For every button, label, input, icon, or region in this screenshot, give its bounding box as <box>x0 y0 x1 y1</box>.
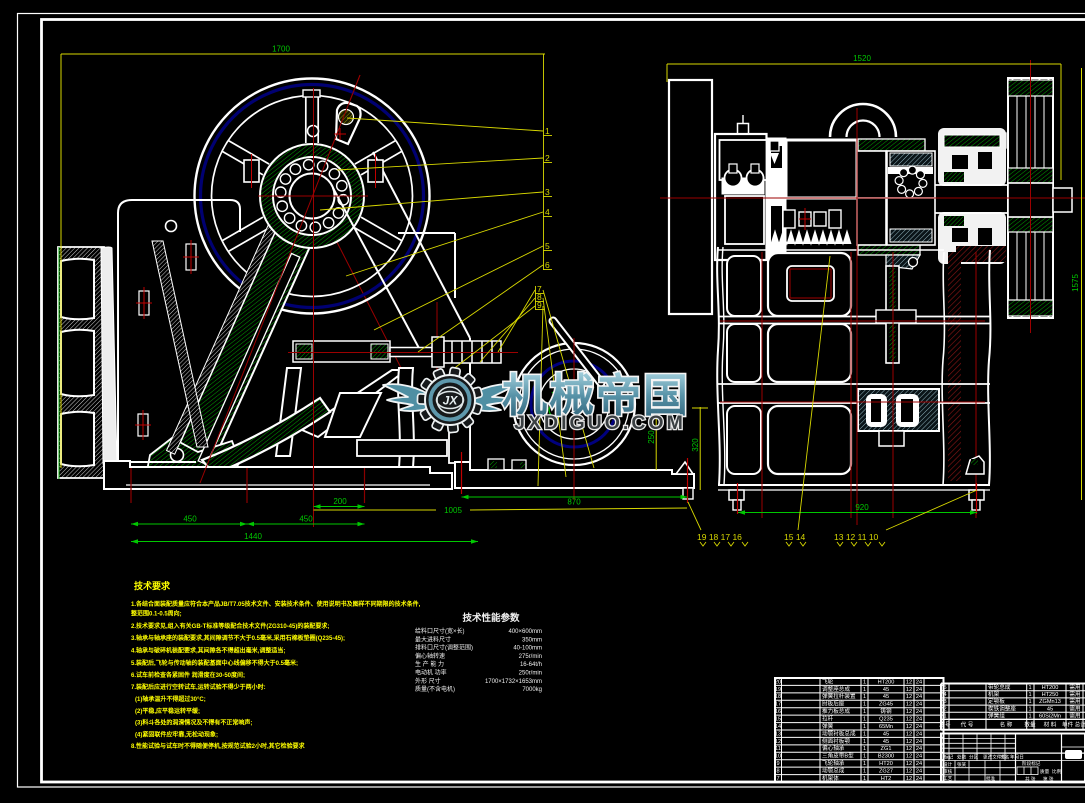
svg-text:3.轴承与轴承座的装配要求,其间隙调节不大于0.5毫米,采用: 3.轴承与轴承座的装配要求,其间隙调节不大于0.5毫米,采用石棉板垫圈(Q235… <box>131 634 345 642</box>
svg-text:4: 4 <box>943 692 946 698</box>
svg-text:12: 12 <box>906 761 912 767</box>
svg-text:20: 20 <box>775 679 781 685</box>
svg-text:4.轴承与破碎机装配要求,其间隙各不得超出毫米,调整适当;: 4.轴承与破碎机装配要求,其间隙各不得超出毫米,调整适当; <box>131 647 285 655</box>
svg-text:920: 920 <box>855 503 869 512</box>
svg-text:铸钢: 铸钢 <box>880 707 892 715</box>
svg-text:1.各结合面装配质量应符合本产品JB/T7.05技术文件、安: 1.各结合面装配质量应符合本产品JB/T7.05技术文件、安装技术条件、使用说明… <box>131 600 421 608</box>
svg-text:45: 45 <box>1047 706 1053 712</box>
svg-text:24: 24 <box>916 776 922 782</box>
svg-text:1: 1 <box>863 731 866 737</box>
svg-text:7000kg: 7000kg <box>522 687 542 693</box>
svg-text:13: 13 <box>775 731 781 737</box>
svg-text:ZG45: ZG45 <box>879 702 893 708</box>
svg-text:分区: 分区 <box>969 754 979 761</box>
svg-text:1: 1 <box>863 679 866 685</box>
svg-text:45: 45 <box>883 731 889 737</box>
svg-text:1: 1 <box>863 761 866 767</box>
svg-text:6: 6 <box>545 260 550 270</box>
svg-text:标记: 标记 <box>944 754 954 761</box>
svg-text:审核: 审核 <box>943 768 953 775</box>
svg-text:12: 12 <box>906 702 912 708</box>
svg-text:1: 1 <box>863 717 866 723</box>
svg-text:调整座总成: 调整座总成 <box>822 685 850 693</box>
svg-text:单件 总计: 单件 总计 <box>1062 721 1085 729</box>
svg-text:1700: 1700 <box>272 45 290 54</box>
svg-text:65Mn: 65Mn <box>879 724 893 730</box>
svg-text:弹簧拉杆装置: 弹簧拉杆装置 <box>822 692 856 700</box>
svg-text:偏心轴转速: 偏心轴转速 <box>415 652 445 660</box>
svg-text:12: 12 <box>906 769 912 775</box>
svg-text:HT250: HT250 <box>1042 692 1059 698</box>
svg-text:工艺: 工艺 <box>943 776 953 781</box>
svg-text:共 张: 共 张 <box>1025 776 1036 783</box>
svg-text:拉杆: 拉杆 <box>822 715 834 723</box>
svg-text:5: 5 <box>943 685 946 691</box>
svg-text:15: 15 <box>775 717 781 723</box>
svg-text:12: 12 <box>906 739 912 745</box>
svg-text:HT200: HT200 <box>878 679 895 685</box>
svg-text:比例: 比例 <box>1052 768 1062 775</box>
svg-text:12: 12 <box>906 731 912 737</box>
svg-text:19 18 17 16: 19 18 17 16 <box>697 532 742 542</box>
svg-text:12: 12 <box>906 776 912 782</box>
svg-text:24: 24 <box>916 769 922 775</box>
svg-text:8.性能试验与试车时不得随便停机,按规范试验2小时,其它检验: 8.性能试验与试车时不得随便停机,按规范试验2小时,其它检验要求 <box>131 742 306 750</box>
svg-text:1: 1 <box>863 739 866 745</box>
svg-text:技术要求: 技术要求 <box>134 580 171 591</box>
svg-text:2: 2 <box>545 153 550 163</box>
svg-text:1: 1 <box>545 126 550 136</box>
svg-text:需用: 需用 <box>1069 698 1080 705</box>
svg-text:6.试车前检查各紧固件 润滑度在30-50度间;: 6.试车前检查各紧固件 润滑度在30-50度间; <box>131 671 245 679</box>
svg-text:电动机 功率: 电动机 功率 <box>415 669 447 677</box>
svg-text:3: 3 <box>545 187 550 197</box>
svg-text:1: 1 <box>863 746 866 752</box>
svg-text:12: 12 <box>906 746 912 752</box>
svg-text:15 14: 15 14 <box>784 532 806 542</box>
svg-text:24: 24 <box>916 717 922 723</box>
svg-text:1: 1 <box>863 769 866 775</box>
svg-text:2: 2 <box>943 706 946 712</box>
svg-text:排料口尺寸(调整范围): 排料口尺寸(调整范围) <box>415 644 473 652</box>
svg-text:1520: 1520 <box>853 54 871 63</box>
svg-text:动颚衬板总成: 动颚衬板总成 <box>822 729 856 737</box>
svg-text:定颚板: 定颚板 <box>988 697 1005 705</box>
svg-text:ZGMn13: ZGMn13 <box>1039 699 1061 705</box>
svg-text:偏心轴承: 偏心轴承 <box>822 744 845 752</box>
svg-text:24: 24 <box>916 724 922 730</box>
svg-text:1: 1 <box>943 714 946 720</box>
svg-text:1: 1 <box>863 724 866 730</box>
svg-text:处数: 处数 <box>957 754 967 761</box>
svg-text:8: 8 <box>776 769 779 775</box>
svg-text:第 张: 第 张 <box>1043 776 1054 783</box>
svg-text:7.装配后应进行空转试车,运转试验不得少于两小时:: 7.装配后应进行空转试车,运转试验不得少于两小时: <box>131 683 266 691</box>
svg-text:4: 4 <box>545 207 550 217</box>
svg-text:1: 1 <box>863 694 866 700</box>
svg-text:机架体: 机架体 <box>822 774 839 782</box>
svg-text:24: 24 <box>916 679 922 685</box>
svg-text:张某: 张某 <box>957 761 967 768</box>
svg-text:1: 1 <box>1028 706 1031 712</box>
svg-text:450: 450 <box>183 515 197 524</box>
svg-text:质量: 质量 <box>1040 768 1050 775</box>
svg-text:签名: 签名 <box>1000 754 1009 761</box>
svg-text:16-64t/h: 16-64t/h <box>520 662 542 668</box>
svg-text:机架: 机架 <box>988 690 1000 698</box>
svg-text:JX: JX <box>443 394 459 408</box>
svg-text:飞轮: 飞轮 <box>822 677 834 685</box>
svg-text:B2300: B2300 <box>878 754 894 760</box>
svg-text:9: 9 <box>776 761 779 767</box>
svg-text:24: 24 <box>916 746 922 752</box>
svg-text:13 12 11 10: 13 12 11 10 <box>834 532 879 542</box>
svg-text:1575: 1575 <box>1071 274 1080 292</box>
svg-text:1: 1 <box>1028 692 1031 698</box>
svg-text:1: 1 <box>1028 714 1031 720</box>
svg-text:需用: 需用 <box>1069 713 1080 720</box>
svg-text:外形 尺寸: 外形 尺寸 <box>415 677 441 685</box>
svg-text:24: 24 <box>916 739 922 745</box>
svg-text:24: 24 <box>916 754 922 760</box>
svg-text:18: 18 <box>775 694 781 700</box>
svg-text:最大进料尺寸: 最大进料尺寸 <box>415 635 451 643</box>
svg-text:推力板总成: 推力板总成 <box>822 707 850 715</box>
svg-text:250r/min: 250r/min <box>519 671 542 677</box>
svg-text:1005: 1005 <box>444 506 462 515</box>
svg-text:阶段标记: 阶段标记 <box>1022 760 1041 767</box>
svg-text:24: 24 <box>916 687 922 693</box>
svg-text:楔铁调整座: 楔铁调整座 <box>988 704 1016 712</box>
svg-text:5: 5 <box>545 241 550 251</box>
svg-text:生 产 能 力: 生 产 能 力 <box>415 660 444 668</box>
svg-text:需用: 需用 <box>1069 705 1080 712</box>
svg-text:代 号: 代 号 <box>961 721 974 729</box>
svg-text:12: 12 <box>775 739 781 745</box>
svg-text:三角皮带B型: 三角皮带B型 <box>822 752 854 760</box>
svg-text:ZG1: ZG1 <box>881 746 892 752</box>
svg-text:1: 1 <box>863 687 866 693</box>
svg-text:(4)紧固联件应牢靠,无松动现象;: (4)紧固联件应牢靠,无松动现象; <box>135 731 218 739</box>
svg-text:材 料: 材 料 <box>1044 721 1057 729</box>
svg-text:2.技术要求见,组入有关GB-T标准等级配合技术文件(ZG3: 2.技术要求见,组入有关GB-T标准等级配合技术文件(ZG310-45)的装配要… <box>131 622 329 630</box>
svg-text:需用: 需用 <box>1069 684 1080 691</box>
svg-text:设计: 设计 <box>943 761 953 768</box>
svg-text:12: 12 <box>906 694 912 700</box>
svg-text:14: 14 <box>775 724 781 730</box>
svg-text:870: 870 <box>567 498 581 507</box>
svg-text:飞轮轴承: 飞轮轴承 <box>822 759 845 767</box>
svg-text:(1)轴承温升不得超过30°C;: (1)轴承温升不得超过30°C; <box>135 695 206 703</box>
svg-text:5.装配后,飞轮与传动轴的装配基面中心线偏移不得大于0.5毫: 5.装配后,飞轮与传动轴的装配基面中心线偏移不得大于0.5毫米; <box>131 659 298 667</box>
svg-text:弹簧组: 弹簧组 <box>988 712 1005 720</box>
svg-text:1: 1 <box>863 702 866 708</box>
svg-text:HT20: HT20 <box>879 761 893 767</box>
svg-text:给料口尺寸(宽×长): 给料口尺寸(宽×长) <box>415 627 465 635</box>
svg-text:序号: 序号 <box>939 721 951 729</box>
svg-text:Q235: Q235 <box>879 717 893 723</box>
svg-text:(2)平稳,应平稳运转平缓;: (2)平稳,应平稳运转平缓; <box>135 707 200 715</box>
svg-text:带轮总成: 带轮总成 <box>988 683 1011 691</box>
svg-text:1: 1 <box>863 776 866 782</box>
svg-text:7: 7 <box>776 776 779 782</box>
svg-text:整范围0.1-0.5周向;: 整范围0.1-0.5周向; <box>130 610 182 618</box>
svg-text:HT200: HT200 <box>1042 685 1059 691</box>
svg-text:12: 12 <box>906 754 912 760</box>
svg-text:17: 17 <box>775 702 781 708</box>
svg-text:12: 12 <box>906 687 912 693</box>
svg-text:1: 1 <box>863 709 866 715</box>
svg-text:45: 45 <box>883 687 889 693</box>
svg-text:质量(不含电机): 质量(不含电机) <box>415 685 455 693</box>
svg-text:200: 200 <box>333 497 347 506</box>
svg-text:12: 12 <box>906 717 912 723</box>
svg-text:60Si2Mn: 60Si2Mn <box>1039 714 1061 720</box>
svg-text:1440: 1440 <box>244 532 262 541</box>
svg-text:24: 24 <box>916 731 922 737</box>
svg-text:HT2: HT2 <box>881 776 892 782</box>
svg-text:数量: 数量 <box>1024 721 1036 729</box>
svg-text:12: 12 <box>906 724 912 730</box>
svg-text:弹簧: 弹簧 <box>822 722 834 730</box>
svg-text:1: 1 <box>1028 685 1031 691</box>
svg-text:40-100mm: 40-100mm <box>513 646 542 652</box>
svg-text:名 称: 名 称 <box>1000 721 1013 729</box>
svg-text:1700×1732×1653mm: 1700×1732×1653mm <box>485 679 542 685</box>
svg-text:年月日: 年月日 <box>1010 754 1024 761</box>
svg-text:24: 24 <box>916 694 922 700</box>
svg-text:11: 11 <box>775 746 781 752</box>
svg-text:3: 3 <box>943 699 946 705</box>
svg-text:9: 9 <box>537 300 542 310</box>
svg-text:JXDIGUO.COM: JXDIGUO.COM <box>514 412 686 434</box>
svg-text:45: 45 <box>883 694 889 700</box>
svg-text:ZG27: ZG27 <box>879 769 893 775</box>
svg-text:动颚总成: 动颚总成 <box>822 767 845 775</box>
svg-text:45: 45 <box>883 739 889 745</box>
svg-text:320: 320 <box>691 438 700 452</box>
svg-text:24: 24 <box>916 709 922 715</box>
svg-text:24: 24 <box>916 702 922 708</box>
svg-text:350mm: 350mm <box>522 637 542 643</box>
svg-text:24: 24 <box>916 761 922 767</box>
svg-text:批准: 批准 <box>986 775 996 782</box>
svg-text:450: 450 <box>299 515 313 524</box>
svg-text:12: 12 <box>906 679 912 685</box>
svg-text:400×600mm: 400×600mm <box>508 629 542 635</box>
svg-text:19: 19 <box>775 687 781 693</box>
svg-text:10: 10 <box>775 754 781 760</box>
svg-text:侧面衬板颚: 侧面衬板颚 <box>822 737 850 745</box>
svg-text:(3)料斗各处的润滑情况及不得有不正常响声;: (3)料斗各处的润滑情况及不得有不正常响声; <box>135 719 252 727</box>
svg-text:技术性能参数: 技术性能参数 <box>462 612 520 624</box>
svg-text:12: 12 <box>906 709 912 715</box>
svg-text:275r/min: 275r/min <box>519 654 542 660</box>
svg-text:需用: 需用 <box>1069 691 1080 698</box>
svg-text:1: 1 <box>863 754 866 760</box>
svg-text:1: 1 <box>1028 699 1031 705</box>
svg-text:肘板后座: 肘板后座 <box>822 700 845 708</box>
svg-text:16: 16 <box>775 709 781 715</box>
